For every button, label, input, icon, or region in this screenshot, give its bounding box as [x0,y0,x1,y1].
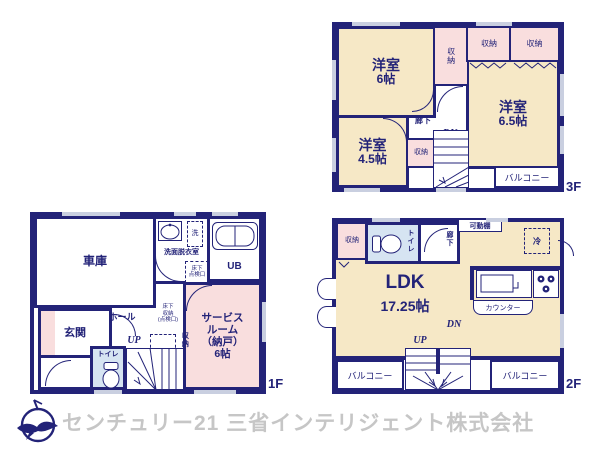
window-marker [436,188,466,192]
counter-label: カウンター [486,303,521,313]
room-1f-unit-bath: UB [207,216,262,282]
room-label: UB [210,261,259,273]
floor-label-2f: 2F [566,376,581,391]
window-marker [476,22,512,26]
window-marker [560,314,564,348]
window-marker [352,22,400,26]
floor-plan-2f: LDK 17.25帖 収納 トイレ 廊下 可動棚 冷 [332,218,564,394]
stairs-down-label: DN [440,319,468,331]
floor-plan-3f: 洋室 6帖 洋室 6.5帖 洋室 4.5帖 収納 収納 収納 廊下 DN 収納 [332,22,564,192]
room-2f-toilet: トイレ [365,222,421,264]
wall [470,266,474,300]
room-label: LDK [375,272,435,295]
room-label: 玄関 [64,327,86,340]
window-marker [332,60,336,100]
room-size: 6.5帖 [499,115,528,129]
window-marker [212,212,238,216]
closet-label: 収納 [414,149,428,157]
door-arc [45,360,71,386]
window-marker [94,390,122,394]
company-logo-bird-icon [14,398,60,446]
stairs-icon [126,348,184,390]
entrance-step [41,311,55,355]
floorplan-canvas: 洋室 6帖 洋室 6.5帖 洋室 4.5帖 収納 収納 収納 廊下 DN 収納 [0,0,600,450]
balcony-label: バルコニー [503,369,548,382]
balcony-2f-left: バルコニー [336,360,404,390]
window-marker [344,188,380,192]
room-size: 4.5帖 [358,153,387,167]
window-marker [174,212,196,216]
toilet-icon [101,362,121,389]
floor-plan-1f: 車庫 洗面脱衣室 洗 床下 点検口 UB [30,212,266,394]
hallway-2f: 廊下 [418,222,460,264]
window-marker [194,390,236,394]
balcony-2f-right: バルコニー [490,360,560,390]
room-label: 車庫 [83,255,107,269]
sink-icon [158,221,182,241]
room-3f-bedroom-65: 洋室 6.5帖 [466,59,560,169]
room-1f-garage: 車庫 [34,216,156,308]
room-label: 洋室 [372,57,400,73]
balcony-3f: バルコニー [494,166,560,188]
balcony-label: バルコニー [505,171,550,184]
refrigerator-space: 冷 [524,228,550,254]
closet-3f-a: 収納 [466,26,512,62]
closet-label: 収納 [481,39,497,48]
room-label: トイレ [93,351,123,359]
room-label: 洋室 [499,99,527,115]
bathtub-icon [212,222,258,250]
room-size: 17.25帖 [370,298,440,315]
laundry-label: 洗 [192,230,199,238]
folding-door-marker [338,261,352,268]
window-marker [560,126,564,154]
hallway-label: 廊下 [445,231,453,247]
closet-label: 収納 [180,332,188,348]
closet-label: 収納 [345,237,359,245]
window-marker [560,74,564,116]
closet-2f: 収納 [336,222,368,260]
window-marker [262,302,266,342]
toilet-icon [372,232,402,256]
folding-door-marker [469,62,509,69]
closet-3f-b: 収納 [509,26,560,62]
closet-label: 収納 [527,39,543,48]
underfloor-inspection-hatch: 床下 点検口 [185,261,209,283]
counter: カウンター [473,300,533,315]
fridge-label: 冷 [533,236,541,247]
room-1f-toilet: トイレ [90,346,126,390]
door-arc [558,240,574,256]
inspection-label: 床下 点検口 [189,266,206,279]
floor-label-3f: 3F [566,179,581,194]
folding-door-marker [513,62,557,69]
balcony-label: バルコニー [348,369,393,382]
door-arc [437,86,463,112]
stairs-icon [433,130,469,188]
floor-label-1f: 1F [268,376,283,391]
stairs-icon [405,348,471,390]
room-size: 6帖 [377,73,396,87]
room-label: サービス ルーム （納戸） 6帖 [202,312,244,360]
laundry-space: 洗 [187,221,203,247]
closet-3f-vertical: 収納 [433,26,469,86]
underfloor-storage-label: 床下 収納 (点検口) [152,304,184,324]
room-label: トイレ [406,229,414,253]
window-marker [62,212,120,216]
window-marker [486,218,508,222]
window-awning [317,306,336,328]
closet-label: 収納 [446,47,455,65]
window-marker [332,138,336,172]
shelf-label: 可動棚 [470,221,491,231]
closet-3f-stairs: 収納 [406,138,436,168]
window-awning [317,278,336,300]
company-name: センチュリー21 三省インテリジェント株式会社 [62,407,534,437]
kitchen-sink-icon [476,270,532,298]
stairs-up-label: UP [408,335,432,347]
stove-icon [533,270,559,298]
window-marker [372,218,400,222]
hallway-label: 廊下 [408,116,438,126]
